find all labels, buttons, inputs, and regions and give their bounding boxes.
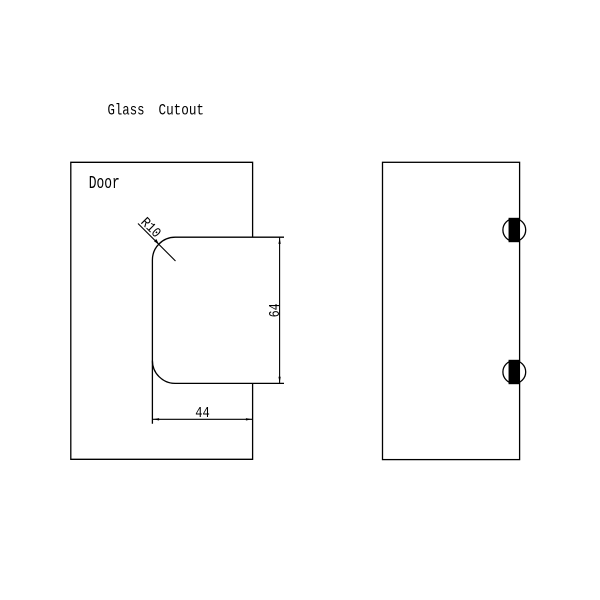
svg-text:Glass: Glass bbox=[108, 102, 145, 120]
svg-text:Cutout: Cutout bbox=[159, 102, 205, 120]
svg-text:64: 64 bbox=[268, 303, 284, 317]
svg-text:Door: Door bbox=[89, 173, 120, 194]
svg-text:44: 44 bbox=[195, 406, 210, 422]
svg-text:R10: R10 bbox=[137, 215, 164, 242]
